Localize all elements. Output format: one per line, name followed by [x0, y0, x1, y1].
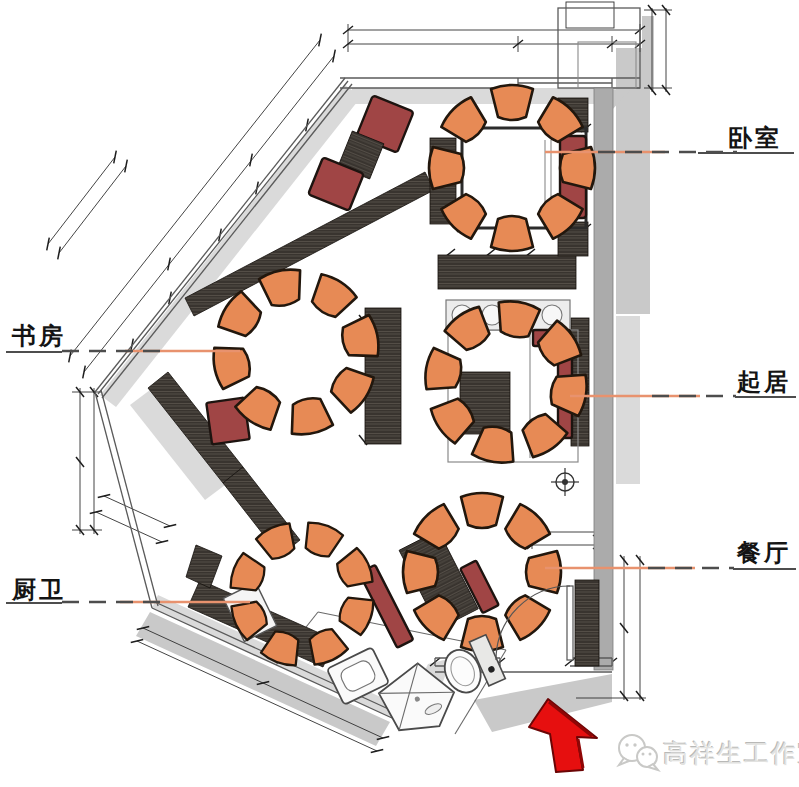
- room-label-dining: 餐厅: [737, 541, 791, 565]
- room-label-bedroom: 卧室: [728, 126, 782, 150]
- room-label-living: 起居: [737, 370, 791, 394]
- wechat-icon: [619, 735, 658, 770]
- dining-furniture: [358, 493, 561, 655]
- room-label-study: 书房: [12, 324, 66, 348]
- floor-plan-page: 卧室 书房 起居 餐厅 厨卫 高祥生工作室: [0, 0, 799, 787]
- crosshair-marker-icon: [551, 468, 579, 496]
- bedroom-furniture: [429, 85, 595, 251]
- floor-plan-svg: [0, 0, 799, 787]
- room-bedroom-seating: [429, 85, 595, 251]
- room-label-kitchen-bath: 厨卫: [12, 578, 66, 602]
- studio-watermark: 高祥生工作室: [663, 741, 799, 766]
